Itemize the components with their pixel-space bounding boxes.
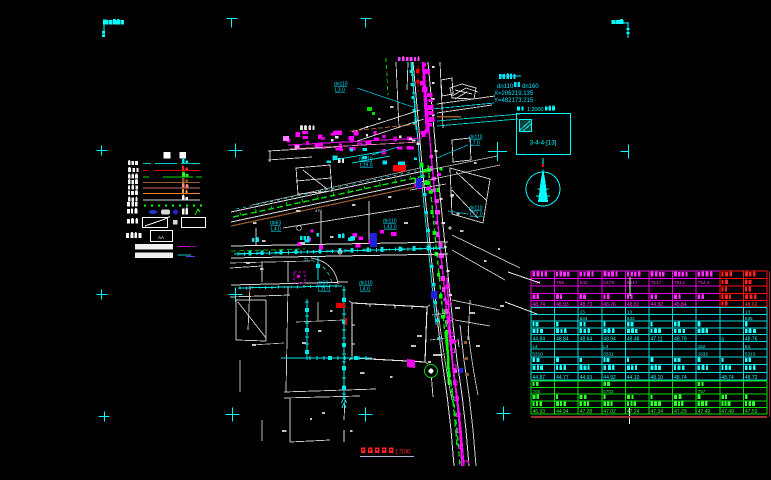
svg-text:542: 542 [580, 280, 588, 286]
svg-text:755: 755 [556, 280, 564, 286]
svg-text:13: 13 [627, 309, 633, 314]
svg-text:48.74: 48.74 [721, 375, 734, 381]
svg-text:534: 534 [580, 316, 588, 321]
svg-text:dn110: dn110 [497, 84, 514, 90]
svg-text:757: 757 [698, 389, 706, 394]
svg-text:152: 152 [698, 344, 706, 349]
svg-text:Y=482173.215: Y=482173.215 [494, 98, 534, 104]
svg-text:1:2000: 1:2000 [527, 107, 544, 113]
svg-text:47.49: 47.49 [721, 409, 734, 415]
svg-text:470: 470 [315, 208, 322, 213]
svg-text:13: 13 [580, 309, 586, 314]
svg-text:44.77: 44.77 [556, 375, 569, 381]
svg-text:5310: 5310 [533, 352, 544, 357]
svg-text:5702: 5702 [603, 389, 614, 394]
svg-text:3331: 3331 [603, 352, 614, 357]
svg-text:7512: 7512 [674, 280, 685, 286]
svg-text:44.93: 44.93 [580, 375, 593, 381]
svg-text:L4: L4 [533, 344, 539, 349]
svg-text:47.53: 47.53 [745, 409, 758, 415]
svg-text:44.10: 44.10 [627, 375, 640, 381]
svg-text:47.49: 47.49 [698, 409, 711, 415]
svg-text:L4: L4 [603, 344, 609, 349]
svg-text:47.28: 47.28 [580, 409, 593, 415]
svg-text:700: 700 [533, 389, 541, 394]
svg-text:3-4-4-[13]: 3-4-4-[13] [530, 140, 557, 147]
svg-text:1:500: 1:500 [395, 449, 411, 456]
svg-text:54: 54 [745, 344, 751, 349]
svg-text:1532: 1532 [698, 352, 709, 357]
svg-text:44.87: 44.87 [533, 375, 546, 381]
svg-text:47.02: 47.02 [603, 409, 616, 415]
svg-text:5313: 5313 [745, 352, 756, 357]
svg-text:44.94: 44.94 [556, 409, 569, 415]
svg-text:5479: 5479 [603, 280, 614, 286]
svg-text:46.93: 46.93 [533, 409, 546, 415]
svg-text:AA: AA [158, 235, 164, 240]
svg-text:5517: 5517 [627, 280, 638, 286]
svg-text:535: 535 [745, 316, 753, 321]
svg-text:48.74: 48.74 [674, 375, 687, 381]
svg-text:7517: 7517 [651, 280, 662, 286]
svg-text:47.29: 47.29 [674, 409, 687, 415]
svg-text:X=206219.135: X=206219.135 [494, 91, 534, 97]
svg-text:47.24: 47.24 [627, 409, 640, 415]
svg-text:dn160: dn160 [522, 84, 539, 90]
svg-text:48.72: 48.72 [745, 375, 758, 381]
svg-text:754.4: 754.4 [698, 280, 710, 286]
svg-text:13: 13 [745, 309, 751, 314]
svg-text:47.34: 47.34 [651, 409, 664, 415]
svg-text:44.92: 44.92 [603, 375, 616, 381]
svg-text:533: 533 [627, 316, 635, 321]
svg-text:48.10: 48.10 [651, 375, 664, 381]
